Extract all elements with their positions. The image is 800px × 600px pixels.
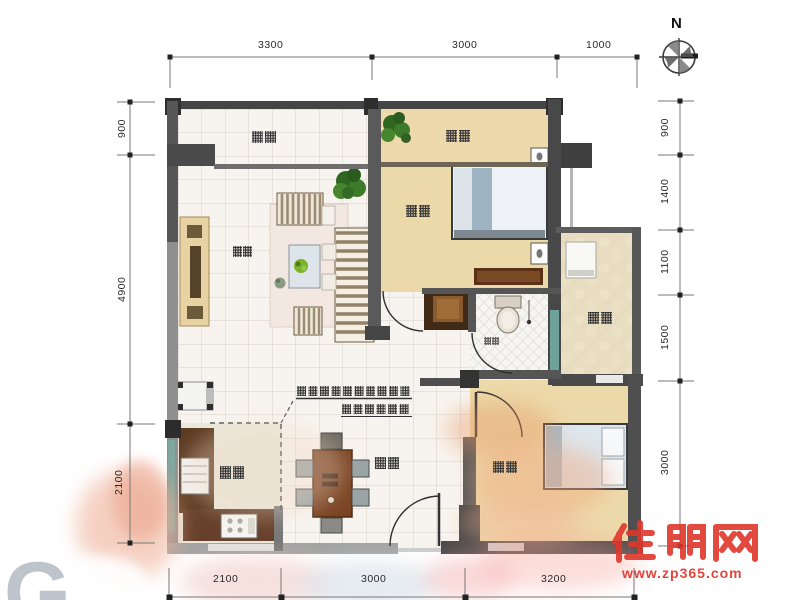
svg-text:4900: 4900 xyxy=(116,277,128,302)
svg-text:1100: 1100 xyxy=(659,249,671,274)
svg-text:1500: 1500 xyxy=(659,325,671,350)
svg-text:1400: 1400 xyxy=(659,179,671,204)
svg-text:900: 900 xyxy=(116,119,128,138)
svg-text:3300: 3300 xyxy=(258,39,283,51)
svg-text:3200: 3200 xyxy=(541,573,566,585)
svg-text:www.zp365.com: www.zp365.com xyxy=(621,565,743,581)
svg-text:2100: 2100 xyxy=(213,573,238,585)
svg-text:900: 900 xyxy=(659,118,671,137)
svg-text:3000: 3000 xyxy=(659,450,671,475)
svg-text:3000: 3000 xyxy=(361,573,386,585)
svg-text:G: G xyxy=(4,545,71,600)
svg-text:3000: 3000 xyxy=(452,39,477,51)
svg-text:2100: 2100 xyxy=(113,470,125,495)
svg-text:1000: 1000 xyxy=(586,39,611,51)
svg-text:N: N xyxy=(671,15,682,32)
